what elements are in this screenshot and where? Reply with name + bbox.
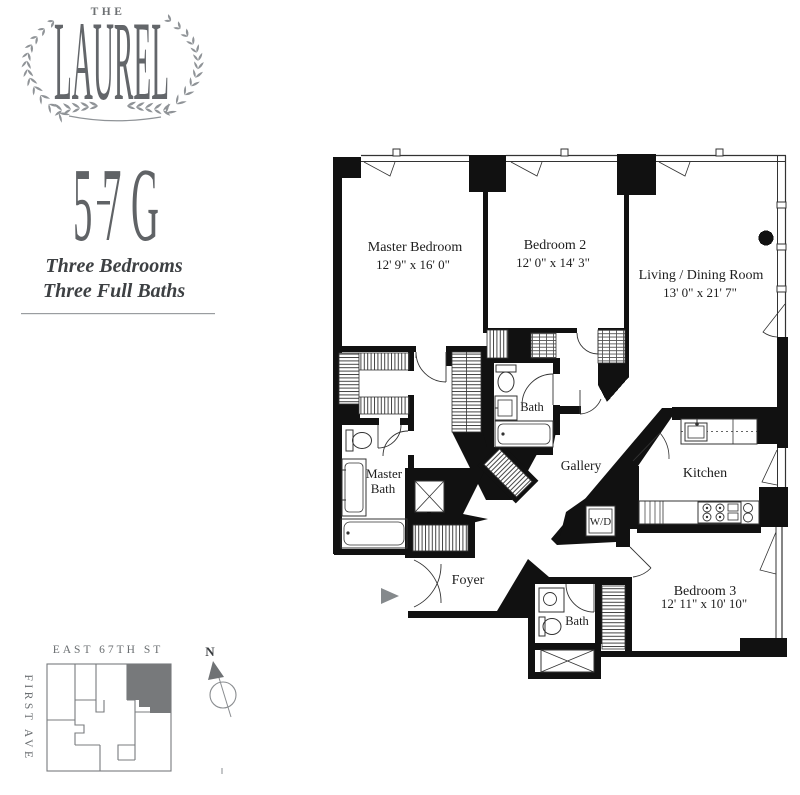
svg-text:Bath: Bath <box>565 614 589 628</box>
svg-text:12' 11" x 10' 10": 12' 11" x 10' 10" <box>661 596 747 611</box>
svg-text:12' 0" x 14' 3": 12' 0" x 14' 3" <box>516 255 590 270</box>
svg-text:N: N <box>205 644 215 659</box>
svg-text:Living / Dining Room: Living / Dining Room <box>639 268 764 283</box>
svg-text:Three Full Baths: Three Full Baths <box>43 280 185 302</box>
svg-text:Bath: Bath <box>371 481 396 496</box>
svg-text:W/D: W/D <box>590 516 611 528</box>
svg-text:Master: Master <box>366 466 403 481</box>
svg-text:FIRST AVE: FIRST AVE <box>22 674 34 761</box>
svg-text:12' 9" x 16' 0": 12' 9" x 16' 0" <box>376 257 450 272</box>
svg-text:LAUREL: LAUREL <box>54 0 169 124</box>
svg-text:Foyer: Foyer <box>452 573 485 588</box>
svg-text:5 7 G: 5 7 G <box>73 146 159 262</box>
svg-text:13' 0" x 21' 7": 13' 0" x 21' 7" <box>663 285 737 300</box>
svg-text:Kitchen: Kitchen <box>683 466 727 481</box>
svg-text:EAST 67TH ST: EAST 67TH ST <box>53 644 164 656</box>
svg-text:Master Bedroom: Master Bedroom <box>368 240 463 255</box>
svg-text:Gallery: Gallery <box>561 458 602 473</box>
svg-text:Three Bedrooms: Three Bedrooms <box>45 255 182 277</box>
svg-text:Bedroom 2: Bedroom 2 <box>524 238 587 253</box>
svg-text:Bath: Bath <box>520 400 544 414</box>
